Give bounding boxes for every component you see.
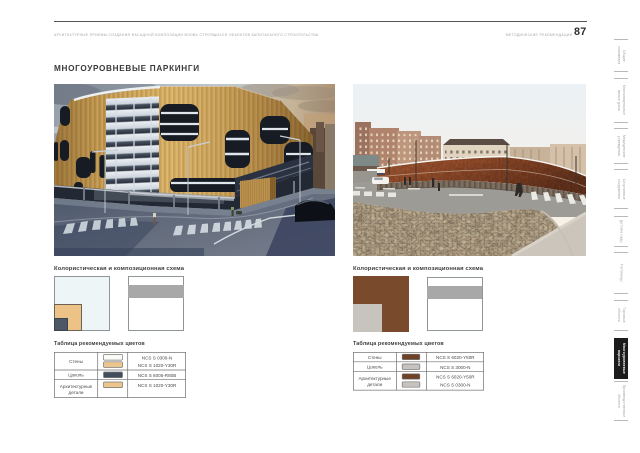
svg-text:NCS S 0300-N: NCS S 0300-N xyxy=(440,383,470,388)
svg-text:NCS S 1020-Y30R: NCS S 1020-Y30R xyxy=(138,383,177,388)
svg-text:Архитектурные: Архитектурные xyxy=(358,376,391,381)
svg-text:Цоколь: Цоколь xyxy=(68,373,84,378)
svg-text:Цоколь: Цоколь xyxy=(367,365,383,370)
svg-text:NCS S 6005-R80B: NCS S 6005-R80B xyxy=(138,373,177,378)
svg-text:NCS S 6020-Y50R: NCS S 6020-Y50R xyxy=(436,375,475,380)
svg-text:Архитектурные: Архитектурные xyxy=(60,384,93,389)
svg-text:NCS S 3000-N: NCS S 3000-N xyxy=(440,365,470,370)
svg-text:детали: детали xyxy=(367,382,382,387)
svg-text:Стены: Стены xyxy=(69,359,83,364)
svg-text:Стены: Стены xyxy=(368,355,382,360)
svg-text:NCS S 6020-Y50R: NCS S 6020-Y50R xyxy=(436,355,475,360)
svg-text:NCS S 1020-Y30R: NCS S 1020-Y30R xyxy=(138,363,177,368)
svg-text:NCS S 0300-N: NCS S 0300-N xyxy=(142,355,172,360)
svg-text:детали: детали xyxy=(69,390,84,395)
